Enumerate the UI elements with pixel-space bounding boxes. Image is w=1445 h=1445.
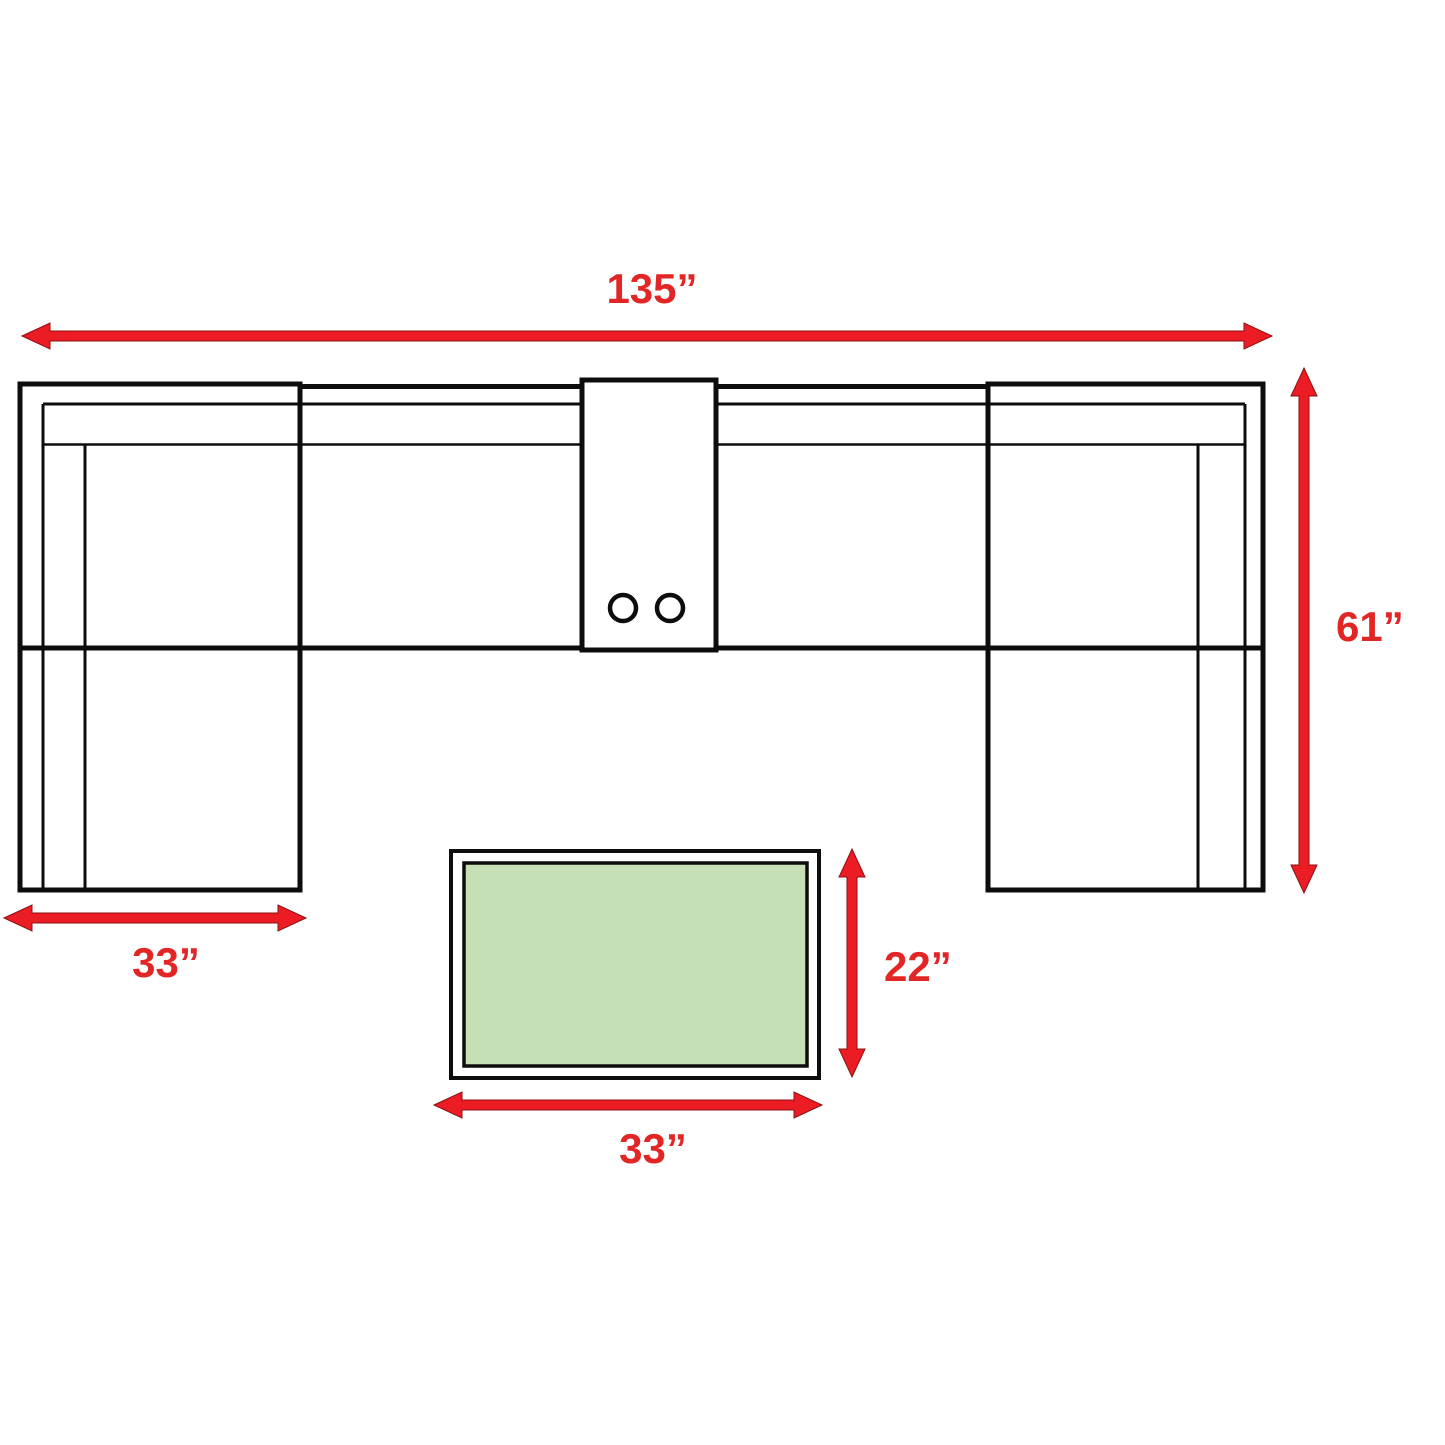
sectional-sofa bbox=[20, 380, 1263, 890]
right-chaise-outline bbox=[988, 384, 1263, 890]
table-width-arrow-icon bbox=[434, 1092, 822, 1118]
sofa-width-label: 135” bbox=[606, 265, 697, 312]
sofa-depth-label: 61” bbox=[1336, 603, 1404, 650]
chaise-width-arrow-icon bbox=[4, 905, 306, 931]
left-chaise-outline bbox=[20, 384, 300, 890]
chaise-width-label: 33” bbox=[132, 939, 200, 986]
furniture-dimension-diagram: 135” 61” 33” 22” 33” bbox=[0, 0, 1445, 1445]
diagram-svg: 135” 61” 33” 22” 33” bbox=[0, 0, 1445, 1445]
coffee-table bbox=[451, 851, 819, 1078]
coffee-table-top bbox=[464, 863, 807, 1066]
table-depth-arrow-icon bbox=[839, 849, 865, 1077]
sofa-width-arrow-icon bbox=[22, 323, 1272, 349]
table-width-label: 33” bbox=[619, 1125, 687, 1172]
table-depth-label: 22” bbox=[884, 943, 952, 990]
center-console bbox=[582, 380, 716, 650]
sofa-depth-arrow-icon bbox=[1291, 368, 1317, 893]
